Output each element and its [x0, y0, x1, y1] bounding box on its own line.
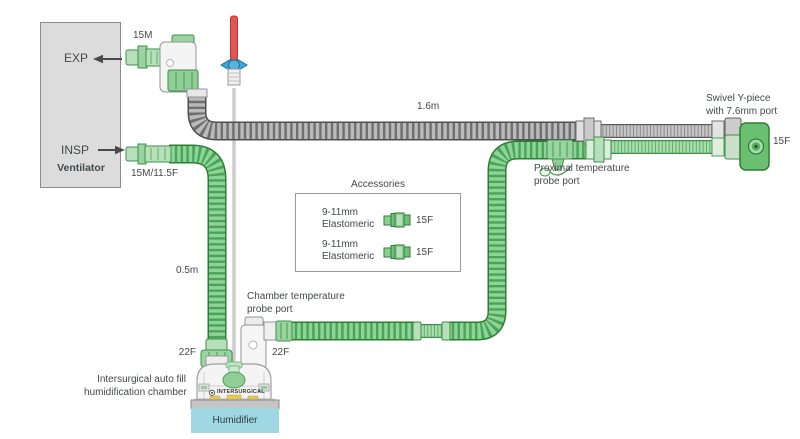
chamber-probe-label-line1: Chamber temperature: [247, 291, 345, 303]
ypiece-label-line1: Swivel Y-piece: [706, 93, 770, 105]
exp-label: EXP: [64, 52, 88, 64]
breathing-circuit-diagram: EXP INSP Ventilator 15M 15M/11.5F 1.6m 0…: [0, 0, 800, 439]
exp-arrow-icon: [93, 55, 122, 63]
insp-arrow-icon: [98, 146, 125, 154]
accessory-1-size-label: 15F: [416, 215, 433, 227]
chamber-outlet-size-label: 22F: [272, 347, 289, 359]
insp-connector-size-label: 15M/11.5F: [131, 168, 178, 180]
intersurgical-brand-label: INTERSURGICAL: [217, 389, 265, 395]
accessory-1-desc-line2: Elastomeric: [322, 219, 374, 231]
accessories-title: Accessories: [295, 179, 461, 191]
chamber-caption-line2: humidification chamber: [84, 387, 186, 399]
swivel-ypiece: [712, 118, 769, 170]
ventilator-title: Ventilator: [40, 162, 122, 174]
expiratory-length-label: 1.6m: [417, 101, 439, 113]
accessory-2-desc-line1: 9-11mm: [322, 239, 358, 251]
accessory-2-desc-line2: Elastomeric: [322, 251, 374, 263]
chamber-outlet-elbow: [241, 317, 292, 369]
elastomeric-connector-icon: [383, 211, 411, 229]
chamber-probe-label-line2: probe port: [247, 304, 293, 316]
chamber-caption-line1: Intersurgical auto fill: [84, 374, 186, 386]
exp-elbow-connector: [126, 35, 207, 97]
proximal-probe-label-line1: Proximal temperature: [534, 163, 630, 175]
proximal-probe-label-line2: probe port: [534, 176, 580, 188]
temperature-probe: [221, 16, 247, 85]
expiratory-tube: [197, 95, 713, 131]
inspiratory-limb-connector: [586, 137, 611, 162]
elastomeric-connector-icon: [383, 243, 411, 261]
ypiece-label-line2: with 7.6mm port: [706, 106, 777, 118]
chamber-inlet-size-label: 22F: [158, 347, 196, 359]
humidifier-label: Humidifier: [212, 415, 257, 426]
supply-length-label: 0.5m: [176, 265, 198, 277]
ypiece-size-label: 15F: [773, 136, 790, 148]
insp-connector: [126, 144, 171, 164]
humidifier-box: Humidifier: [191, 408, 279, 433]
insp-label: INSP: [61, 144, 89, 156]
accessory-1-desc-line1: 9-11mm: [322, 207, 358, 219]
inspiratory-supply-tube: [169, 154, 217, 343]
exp-connector-size-label: 15M: [133, 30, 152, 42]
accessory-2-size-label: 15F: [416, 247, 433, 259]
